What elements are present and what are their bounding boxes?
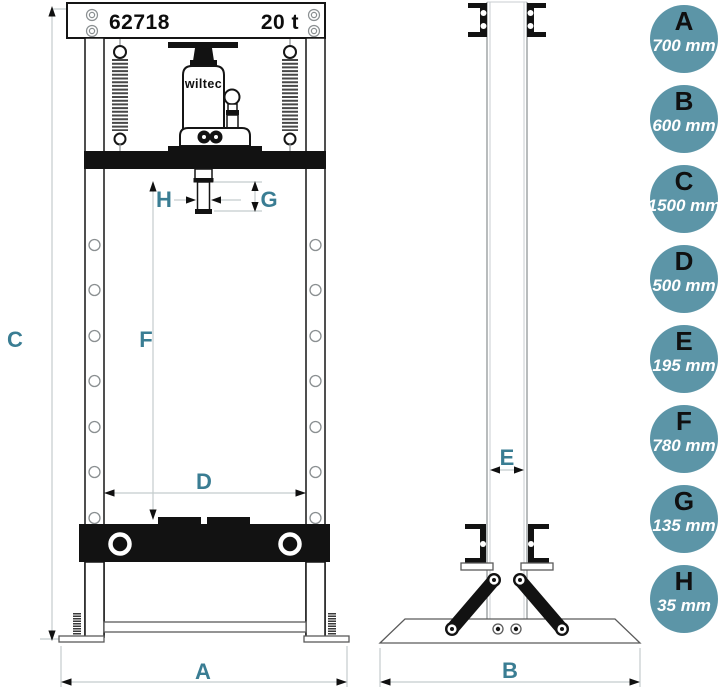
jack-top-plate: [168, 42, 238, 48]
badge-letter: G: [674, 486, 694, 516]
brand-label: wiltec: [184, 77, 222, 91]
channel-profile: [527, 3, 546, 37]
badge-value: 700 mm: [652, 36, 715, 55]
dimension-g: G: [214, 181, 278, 212]
left-leg: [85, 562, 104, 637]
side-view: E: [380, 2, 640, 687]
badge-c: C 1500 mm: [648, 165, 720, 233]
left-foot: [59, 636, 104, 642]
arrowhead-left: [380, 678, 391, 685]
top-crossmember: 62718 20 t: [67, 3, 325, 38]
base-frame: [59, 562, 349, 642]
badge-value: 195 mm: [652, 356, 715, 375]
badge-value: 135 mm: [652, 516, 715, 535]
arrowhead-left: [490, 466, 500, 473]
work-table: [79, 524, 330, 562]
label-d: D: [196, 469, 212, 494]
badge-value: 600 mm: [652, 116, 715, 135]
badge-h: H 35 mm: [650, 565, 718, 633]
right-leg: [306, 562, 325, 637]
arrowhead-left: [211, 196, 221, 203]
side-table-channels: [461, 524, 553, 570]
label-b: B: [502, 658, 518, 683]
badge-letter: A: [675, 6, 694, 36]
arrowhead-right: [296, 489, 307, 496]
badge-value: 35 mm: [657, 596, 711, 615]
label-e: E: [500, 445, 515, 470]
press-dimension-diagram: C 62718 20 t: [0, 0, 720, 687]
dimension-e: E: [490, 445, 524, 474]
dimension-d: D: [104, 469, 306, 497]
press-block-right: [207, 517, 250, 524]
badge-e: E 195 mm: [650, 325, 718, 393]
badge-d: D 500 mm: [650, 245, 718, 313]
label-g: G: [260, 187, 277, 212]
badge-letter: F: [676, 406, 692, 436]
badge-letter: D: [675, 246, 694, 276]
dimension-b: B: [380, 648, 640, 687]
side-top-channels: [468, 3, 546, 37]
arrowhead-right: [186, 196, 196, 203]
arrowhead-right: [514, 466, 524, 473]
spring-hook-icon: [114, 46, 126, 58]
side-base: [380, 619, 640, 643]
press-block-left: [158, 517, 201, 524]
spring-hook-icon: [284, 46, 296, 58]
badge-letter: C: [675, 166, 694, 196]
badge-value: 1500 mm: [648, 196, 720, 215]
model-number: 62718: [109, 11, 170, 34]
dimension-f: F: [139, 181, 156, 520]
badge-value: 780 mm: [652, 436, 715, 455]
spring-hook-icon: [115, 134, 126, 145]
arrowhead-right: [337, 678, 348, 685]
hydraulic-bottle-jack: wiltec: [168, 42, 262, 152]
label-h: H: [156, 187, 172, 212]
capacity-label: 20 t: [261, 11, 299, 34]
right-foot: [304, 636, 349, 642]
right-return-spring: [284, 39, 296, 152]
arrowhead-left: [104, 489, 115, 496]
badge-g: G 135 mm: [650, 485, 718, 553]
press-crosshead-beam: [84, 151, 326, 169]
dimension-a: A: [61, 646, 347, 687]
cross-brace: [104, 622, 306, 632]
press-ram: [194, 169, 214, 214]
front-view: C 62718 20 t: [7, 3, 349, 687]
arrowhead-up: [48, 6, 55, 17]
badge-b: B 600 mm: [650, 85, 718, 153]
arrowhead-right: [630, 678, 641, 685]
jack-body: [183, 66, 224, 131]
badge-value: 500 mm: [652, 276, 715, 295]
dimension-legend: A 700 mm B 600 mm C 1500 mm D 500 mm E 1…: [648, 5, 720, 633]
label-f: F: [139, 327, 152, 352]
jack-pump-eye: [225, 90, 240, 105]
badge-f: F 780 mm: [650, 405, 718, 473]
badge-a: A 700 mm: [650, 5, 718, 73]
badge-letter: B: [675, 86, 694, 116]
jack-ram-neck: [193, 48, 214, 61]
label-c: C: [7, 327, 23, 352]
channel-profile: [468, 3, 487, 37]
diagram-canvas: C 62718 20 t: [0, 0, 720, 687]
arrowhead-left: [61, 678, 72, 685]
arrowhead-down: [149, 510, 156, 521]
spring-hook-icon: [285, 134, 296, 145]
side-column: [487, 2, 527, 620]
label-a: A: [195, 659, 211, 684]
left-return-spring: [114, 39, 126, 152]
badge-letter: H: [675, 566, 694, 596]
dimension-c: C: [7, 6, 84, 641]
badge-letter: E: [675, 326, 692, 356]
